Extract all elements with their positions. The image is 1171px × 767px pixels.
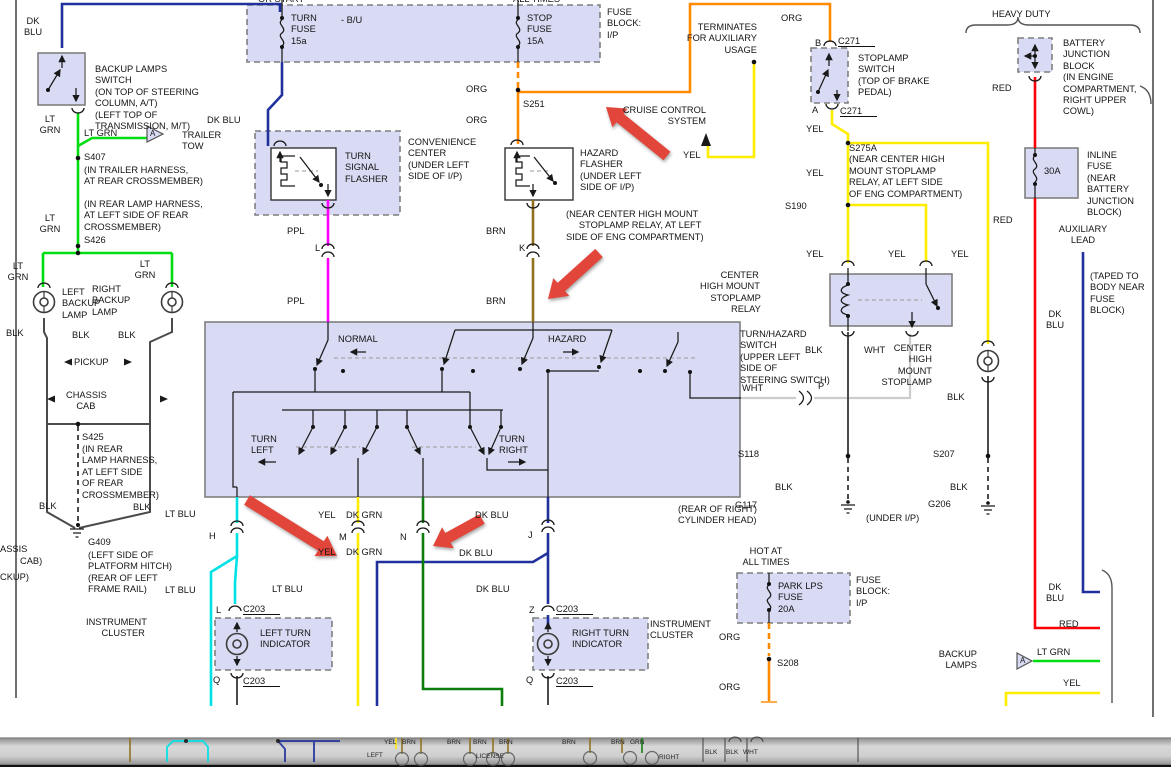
trailer-tow-a-glyph: A: [150, 128, 155, 139]
org-label-4: ORG: [719, 632, 740, 643]
dk-blu-label-1: DK BLU: [18, 16, 48, 39]
connector-a-label: A: [812, 105, 818, 116]
dk-blu-label-3: DK BLU: [1040, 309, 1070, 332]
bu-tap-label: - B/U: [341, 15, 362, 26]
hot-at-all-times-label: HOT AT ALL TIMES: [735, 546, 797, 569]
hot-in-run-fragment: OR START: [258, 0, 304, 5]
rear-cylinder-note: (REAR OF RIGHT) CYLINDER HEAD): [678, 504, 757, 527]
dk-grn-label-2: DK GRN: [346, 547, 382, 558]
right-turn-indicator-label: RIGHT TURN INDICATOR: [572, 628, 629, 651]
s251-label: S251: [523, 99, 545, 110]
instrument-cluster-left-label: INSTRUMENT CLUSTER: [86, 617, 147, 640]
s118-label: S118: [738, 449, 759, 460]
lt-grn-label-4: LT GRN: [0, 261, 36, 284]
turn-fuse-label: TURN FUSE 15a: [291, 13, 317, 47]
connector-n-label: N: [400, 532, 407, 543]
red-label-2: RED: [993, 215, 1013, 226]
dk-blu-label-2: DK BLU: [207, 115, 241, 126]
turn-right-label: TURN RIGHT: [499, 434, 528, 457]
dk-grn-label-1: DK GRN: [346, 510, 382, 521]
bar-brn-label-3: BRN: [473, 739, 487, 747]
inline-fuse-label: INLINE FUSE (NEAR BATTERY JUNCTION BLOCK…: [1087, 150, 1134, 218]
connector-q1-label: Q: [213, 675, 220, 686]
fuse-block-ip-label-2: FUSE BLOCK: I/P: [856, 575, 890, 609]
blk-label-4: BLK: [39, 501, 57, 512]
lt-grn-label-3: LT GRN: [32, 213, 68, 236]
bar-right-label: RIGHT: [659, 754, 679, 762]
lt-grn-label-5: LT GRN: [127, 259, 163, 282]
connector-j-label: J: [528, 530, 533, 541]
connector-b-label: B: [815, 38, 821, 49]
lt-blu-label-2: LT BLU: [165, 585, 196, 596]
c271-top-label: C271: [838, 36, 875, 47]
convenience-center-label: CONVENIENCE CENTER (UNDER LEFT SIDE OF I…: [408, 137, 476, 183]
connector-q2-label: Q: [526, 675, 533, 686]
g206-label: G206: [928, 499, 951, 510]
s426-note: (IN REAR LAMP HARNESS, AT LEFT SIDE OF R…: [84, 199, 203, 233]
lt-grn-label-1: LT GRN: [32, 114, 68, 137]
yel-label-6: YEL: [1063, 678, 1081, 689]
lt-grn-label-6: LT GRN: [1037, 647, 1070, 658]
yel-label-cruise: YEL: [683, 150, 701, 161]
g409-label: G409: [88, 537, 111, 548]
red-label-3: RED: [1059, 619, 1079, 630]
bar-left-label: LEFT: [367, 752, 383, 760]
ppl-label-1: PPL: [287, 226, 305, 237]
chassis-fragment: ASSIS: [0, 544, 27, 555]
connector-h-label: H: [209, 531, 216, 542]
pickup-label: PICKUP: [74, 357, 109, 368]
c203-label-1: C203: [243, 604, 280, 615]
right-backup-lamp-label: RIGHT BACKUP LAMP: [92, 284, 130, 318]
s208-label: S208: [777, 658, 799, 669]
chm-relay-label: CENTER HIGH MOUNT STOPLAMP RELAY: [700, 270, 761, 316]
bar-blk-label-2: BLK: [726, 749, 738, 757]
bar-brn-label-4: BRN: [499, 739, 513, 747]
dk-blu-label-5: DK BLU: [475, 510, 509, 521]
org-label-3: ORG: [781, 13, 802, 24]
org-label-1: ORG: [466, 84, 487, 95]
connector-p-label: P: [818, 381, 824, 392]
chm-relay-location-note: (NEAR CENTER HIGH MOUNT STOPLAMP RELAY, …: [566, 209, 704, 243]
s275a-label: S275A (NEAR CENTER HIGH MOUNT STOPLAMP R…: [849, 143, 962, 200]
heavy-duty-label: HEAVY DUTY: [992, 9, 1051, 20]
instrument-cluster-right-label: INSTRUMENT CLUSTER: [650, 619, 711, 642]
cab-fragment: CAB): [20, 556, 42, 567]
bar-blk-label-1: BLK: [705, 749, 717, 757]
yel-label-3: YEL: [806, 249, 824, 260]
connector-z-label: Z: [529, 605, 535, 616]
cruise-control-label: CRUISE CONTROL SYSTEM: [616, 105, 706, 128]
bar-brn-label-1: BRN: [402, 739, 416, 747]
fuse-block-ip-label: FUSE BLOCK: I/P: [607, 7, 641, 41]
s407-label: S407: [84, 152, 106, 163]
ppl-label-2: PPL: [287, 296, 305, 307]
lt-blu-label-1: LT BLU: [165, 509, 196, 520]
s425-label: S425: [82, 432, 104, 443]
chm-stoplamp-label: CENTER HIGH MOUNT STOPLAMP: [840, 343, 932, 389]
bar-wht-label: WHT: [743, 749, 758, 757]
battery-junction-label: BATTERY JUNCTION BLOCK (IN ENGINE COMPAR…: [1063, 38, 1137, 118]
dk-blu-label-7: DK BLU: [476, 584, 510, 595]
bar-yel-label: YEL: [384, 739, 396, 747]
red-label-1: RED: [992, 83, 1012, 94]
hazard-flasher-label: HAZARD FLASHER (UNDER LEFT SIDE OF I/P): [580, 148, 641, 194]
c203-label-4: C203: [556, 676, 593, 687]
yel-label-2: YEL: [806, 168, 824, 179]
yel-label-8: YEL: [318, 547, 336, 558]
hazard-label: HAZARD: [548, 334, 586, 345]
backup-lamps-label: BACKUP LAMPS: [905, 649, 977, 672]
s425-note: (IN REAR LAMP HARNESS, AT LEFT SIDE OF R…: [82, 444, 159, 501]
blk-label-9: BLK: [950, 482, 968, 493]
c203-label-2: C203: [243, 676, 280, 687]
dk-blu-label-6: DK BLU: [459, 548, 493, 559]
s207-label: S207: [933, 449, 955, 460]
connector-k-label: K: [519, 243, 525, 254]
brn-label-1: BRN: [486, 226, 506, 237]
blk-label-5: BLK: [133, 502, 151, 513]
wiring-diagram-page: OR STARTALL TIMESFUSE BLOCK: I/PTURN FUS…: [0, 0, 1171, 767]
pickup-fragment: CKUP): [0, 572, 29, 583]
blk-label-7: BLK: [947, 392, 965, 403]
blk-label-6: BLK: [805, 345, 823, 356]
trailer-tow-label: TRAILER TOW: [182, 130, 221, 153]
blk-label-1: BLK: [6, 328, 24, 339]
yel-label-7: YEL: [318, 510, 336, 521]
c271-bottom-label: C271: [840, 106, 877, 117]
hot-at-all-times-fragment: ALL TIMES: [513, 0, 560, 5]
turn-signal-flasher-label: TURN SIGNAL FLASHER: [345, 151, 388, 185]
backup-lamps-switch-label: BACKUP LAMPS SWITCH (ON TOP OF STEERING …: [95, 64, 199, 132]
blk-label-8: BLK: [775, 482, 793, 493]
brn-label-2: BRN: [486, 296, 506, 307]
c203-label-3: C203: [556, 604, 593, 615]
stoplamp-switch-label: STOPLAMP SWITCH (TOP OF BRAKE PEDAL): [858, 53, 929, 99]
blk-label-2: BLK: [72, 330, 90, 341]
terminates-label: TERMINATES FOR AUXILIARY USAGE: [657, 22, 757, 56]
s407-note: (IN TRAILER HARNESS, AT REAR CROSSMEMBER…: [84, 165, 203, 188]
diagram-labels: OR STARTALL TIMESFUSE BLOCK: I/PTURN FUS…: [0, 0, 1171, 767]
yel-label-4: YEL: [888, 249, 906, 260]
blk-label-3: BLK: [118, 330, 136, 341]
connector-m-label: M: [339, 532, 347, 543]
bar-grn-label: GRN: [630, 739, 644, 747]
bar-brn-label-2: BRN: [447, 739, 461, 747]
s190-label: S190: [785, 201, 807, 212]
left-turn-indicator-label: LEFT TURN INDICATOR: [260, 628, 311, 651]
lt-blu-label-3: LT BLU: [272, 584, 303, 595]
turn-left-label: TURN LEFT: [251, 434, 277, 457]
stop-fuse-label: STOP FUSE 15A: [527, 13, 552, 47]
bar-brn-label-6: BRN: [611, 739, 625, 747]
dk-blu-label-4: DK BLU: [1040, 582, 1070, 605]
org-label-2: ORG: [466, 115, 487, 126]
yel-label-1: YEL: [806, 124, 824, 135]
taped-note: (TAPED TO BODY NEAR FUSE BLOCK): [1090, 271, 1145, 317]
wht-label-2: WHT: [742, 383, 763, 394]
auxiliary-lead-label: AUXILIARY LEAD: [1052, 224, 1114, 247]
bar-brn-label-5: BRN: [562, 739, 576, 747]
turn-hazard-switch-label: TURN/HAZARD SWITCH (UPPER LEFT SIDE OF S…: [740, 329, 830, 386]
fuse-30a-label: 30A: [1044, 166, 1061, 177]
connector-l2-label: L: [216, 605, 221, 616]
s426-label: S426: [84, 235, 106, 246]
chassis-cab-label: CHASSIS CAB: [66, 390, 107, 413]
under-ip-note: (UNDER I/P): [866, 513, 919, 524]
park-lps-fuse-label: PARK LPS FUSE 20A: [778, 581, 823, 615]
yel-label-5: YEL: [951, 249, 969, 260]
lt-grn-label-2: LT GRN: [84, 128, 117, 139]
backup-lamps-a-glyph: A: [1020, 655, 1025, 666]
connector-l-label: L: [315, 243, 320, 254]
org-label-5: ORG: [719, 682, 740, 693]
bar-license-label: LICENSE: [476, 753, 504, 761]
normal-label: NORMAL: [338, 334, 378, 345]
g409-note: (LEFT SIDE OF PLATFORM HITCH) (REAR OF L…: [88, 550, 172, 596]
